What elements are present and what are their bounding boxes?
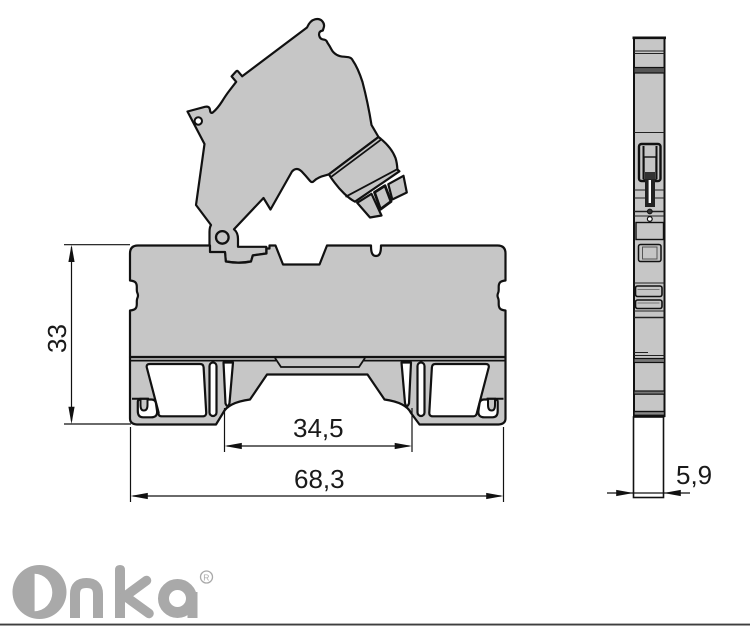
svg-text:R: R <box>203 573 209 583</box>
svg-text:5,9: 5,9 <box>676 460 712 490</box>
svg-text:68,3: 68,3 <box>294 464 345 494</box>
svg-text:34,5: 34,5 <box>293 413 344 443</box>
svg-text:33: 33 <box>42 324 72 353</box>
